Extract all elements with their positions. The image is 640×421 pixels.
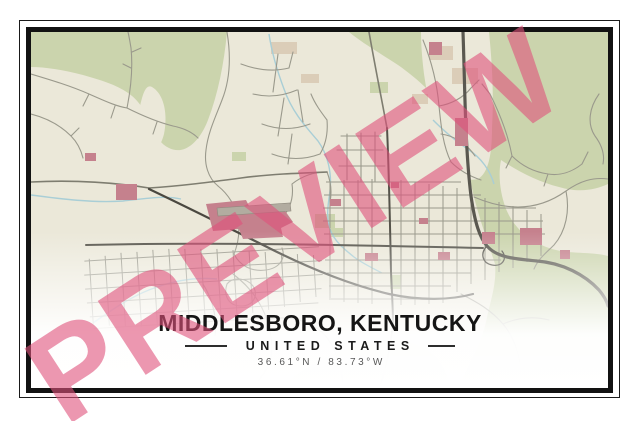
subtitle-left-dash — [185, 345, 227, 347]
subtitle-right-dash — [428, 345, 455, 347]
poster-coordinates: 36.61°N / 83.73°W — [0, 357, 640, 368]
title-block: MIDDLESBORO, KENTUCKY UNITED STATES 36.6… — [0, 311, 640, 368]
map-poster-preview: MIDDLESBORO, KENTUCKY UNITED STATES 36.6… — [0, 0, 640, 421]
poster-title: MIDDLESBORO, KENTUCKY — [0, 311, 640, 335]
subtitle-row: UNITED STATES — [0, 339, 640, 353]
poster-subtitle: UNITED STATES — [240, 339, 414, 353]
